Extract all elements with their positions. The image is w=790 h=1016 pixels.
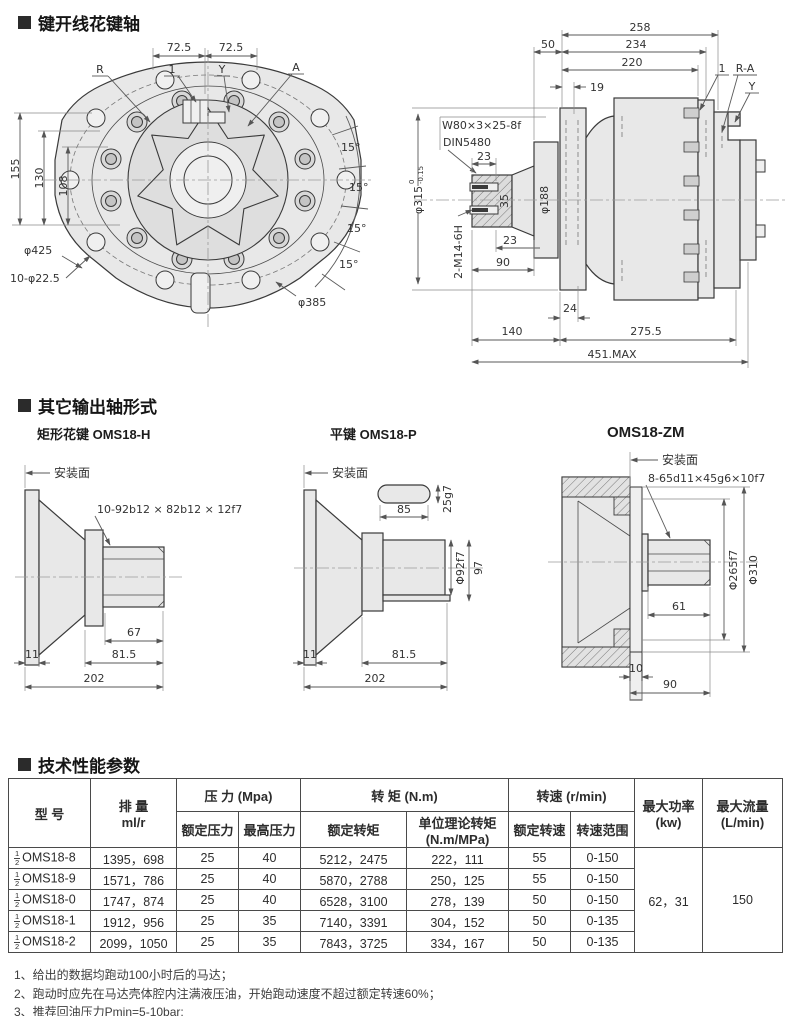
max-pressure-cell: 40	[239, 848, 301, 869]
dim-188: φ188	[538, 186, 551, 214]
dim-451-max: 451.MAX	[587, 348, 637, 361]
dim-315: φ315	[412, 186, 425, 214]
label-a: A	[292, 61, 300, 74]
max-pressure-cell: 40	[239, 869, 301, 890]
rated-speed-cell: 55	[509, 848, 571, 869]
half-fraction: 12	[14, 913, 20, 930]
dim-23a: 23	[477, 150, 491, 163]
rated-speed-cell: 50	[509, 890, 571, 911]
group-header-pressure: 压 力 (Mpa)	[177, 779, 301, 812]
rated-torque-cell: 6528，3100	[301, 890, 407, 911]
rated-speed-cell: 55	[509, 869, 571, 890]
dim-258: 258	[630, 21, 651, 34]
dim-11: 11	[25, 648, 39, 661]
dim-385: φ385	[298, 296, 326, 309]
spline-spec: 10-92b12 × 82b12 × 12f7	[97, 503, 242, 516]
shaft-zm-drawing: 安装面 8-65d11×45g6×10f7 Φ265f7 Φ310 61 10 …	[540, 430, 790, 710]
dim-23b: 23	[503, 234, 517, 247]
section-marker-icon	[18, 16, 31, 29]
displacement-cell: 2099，1050	[91, 932, 177, 953]
max-pressure-cell: 35	[239, 932, 301, 953]
angle-15-3: 15°	[347, 222, 367, 235]
max-pressure-cell: 35	[239, 911, 301, 932]
label-y: Y	[748, 80, 756, 93]
spline-callout: 8-65d11×45g6×10f7	[646, 472, 765, 538]
col-header-displacement-line1: 排 量	[91, 796, 176, 815]
spline-callout: 10-92b12 × 82b12 × 12f7	[95, 503, 242, 545]
shaft-p-drawing: 安装面 85 25g7 Φ92f7 97 11 81.5 202	[290, 455, 500, 700]
max-flow-cell: 150	[703, 848, 783, 953]
model-cell: 12OMS18-8	[9, 848, 91, 869]
dim-holes-22-5: 10-φ22.5	[10, 272, 60, 285]
footnote-1: 1、给出的数据均跑动100小时后的马达；	[14, 966, 441, 985]
spline-spec: 8-65d11×45g6×10f7	[648, 472, 765, 485]
speed-range-cell: 0-150	[571, 869, 635, 890]
group-header-speed: 转速 (r/min)	[509, 779, 635, 812]
unit-torque-cell: 334，167	[407, 932, 509, 953]
section-title-text: 技术性能参数	[38, 752, 140, 777]
dim-202: 202	[365, 672, 386, 685]
rated-pressure-cell: 25	[177, 890, 239, 911]
model-name: OMS18-9	[22, 871, 76, 885]
dim-234: 234	[626, 38, 647, 51]
label-r: R	[96, 63, 104, 76]
model-cell: 12OMS18-2	[9, 932, 91, 953]
half-fraction: 12	[14, 892, 20, 909]
main-barrel	[614, 98, 698, 300]
mount-face-callout: 安装面	[304, 465, 368, 488]
displacement-cell: 1571，786	[91, 869, 177, 890]
col-header-speed-range: 转速范围	[571, 812, 635, 848]
section-title-text: 其它输出轴形式	[38, 393, 157, 418]
unit-torque-cell: 304，152	[407, 911, 509, 932]
dim-81-5: 81.5	[392, 648, 417, 661]
displacement-cell: 1395，698	[91, 848, 177, 869]
dim-35: 35	[498, 194, 511, 208]
dim-61: 61	[672, 600, 686, 613]
rated-torque-cell: 5870，2788	[301, 869, 407, 890]
footnote-2: 2、跑动时应先在马达壳体腔内注满液压油，开始跑动速度不超过额定转速60%；	[14, 985, 441, 1004]
model-cell: 12OMS18-9	[9, 869, 91, 890]
label-1: 1	[169, 63, 176, 76]
mount-face-label: 安装面	[332, 465, 368, 480]
unit-torque-cell: 278，139	[407, 890, 509, 911]
dim-155: 155	[9, 159, 22, 180]
model-name: OMS18-2	[22, 934, 76, 948]
half-fraction: 12	[14, 934, 20, 951]
label-1: 1	[719, 62, 726, 75]
col-header-model: 型 号	[9, 779, 91, 848]
motor-front-view-drawing: 72.5 72.5 R 1 Y A 155 130 108	[0, 30, 400, 365]
col-header-max-flow: 最大流量 (L/min)	[703, 779, 783, 848]
dim-220: 220	[622, 56, 643, 69]
model-name: OMS18-0	[22, 892, 76, 906]
half-fraction: 12	[14, 871, 20, 888]
dim-24: 24	[563, 302, 577, 315]
thread-spec: 2-M14-6H	[452, 225, 465, 279]
section-title-output-shafts: 其它输出轴形式	[18, 393, 157, 418]
dim-50: 50	[541, 38, 555, 51]
rated-pressure-cell: 25	[177, 911, 239, 932]
mount-face-label: 安装面	[662, 452, 698, 467]
dim-315-group: φ315 0 -0.15	[408, 166, 425, 214]
angle-15-2: 15°	[349, 181, 369, 194]
dim-90: 90	[663, 678, 677, 691]
dim-81-5: 81.5	[112, 648, 137, 661]
mount-face-label: 安装面	[54, 465, 90, 480]
key	[378, 485, 430, 503]
speed-range-cell: 0-150	[571, 848, 635, 869]
col-header-max-power: 最大功率 (kw)	[635, 779, 703, 848]
mounting-plate	[630, 487, 642, 652]
angle-15-1: 15°	[341, 141, 361, 154]
col-header-rated-pressure: 额定压力	[177, 812, 239, 848]
col-header-max-power-line1: 最大功率	[635, 796, 702, 815]
flange-315	[560, 108, 586, 290]
rated-pressure-cell: 25	[177, 848, 239, 869]
displacement-cell: 1747，874	[91, 890, 177, 911]
rated-pressure-cell: 25	[177, 869, 239, 890]
motor-side-section-drawing: 258 50 234 220 19 1 R-A Y W80×3×25-8f DI…	[400, 20, 790, 370]
section-title-specs: 技术性能参数	[18, 752, 140, 777]
spline-spec: W80×3×25-8f	[442, 119, 522, 132]
din-standard: DIN5480	[443, 136, 491, 149]
col-header-max-flow-line1: 最大流量	[703, 796, 782, 815]
unit-torque-cell: 250，125	[407, 869, 509, 890]
rated-torque-cell: 7843，3725	[301, 932, 407, 953]
dim-130: 130	[33, 168, 46, 189]
output-spline	[648, 540, 710, 585]
col-header-rated-torque: 额定转矩	[301, 812, 407, 848]
dim-92f7: Φ92f7	[454, 551, 467, 585]
rated-pressure-cell: 25	[177, 932, 239, 953]
rated-speed-cell: 50	[509, 911, 571, 932]
label-ra: R-A	[736, 62, 755, 75]
dim-11: 11	[303, 648, 317, 661]
dim-19: 19	[590, 81, 604, 94]
footnotes: 1、给出的数据均跑动100小时后的马达； 2、跑动时应先在马达壳体腔内注满液压油…	[14, 966, 441, 1016]
shaft-profile	[25, 490, 164, 665]
label-y: Y	[218, 63, 226, 76]
mount-face-callout: 安装面	[25, 465, 90, 488]
col-header-max-power-line2: (kw)	[635, 815, 702, 830]
col-header-unit-torque: 单位理论转矩 (N.m/MPa)	[407, 812, 509, 848]
dim-315-tol-hi: 0	[408, 180, 416, 184]
model-cell: 12OMS18-1	[9, 911, 91, 932]
col-header-displacement: 排 量 ml/r	[91, 779, 177, 848]
dim-97: 97	[472, 561, 485, 575]
subtitle-oms18-h: 矩形花键 OMS18-H	[37, 424, 150, 443]
dim-72-left: 72.5	[167, 41, 192, 54]
table-row: 12OMS18-8 1395，698 25 40 5212，2475 222，1…	[9, 848, 783, 869]
rated-torque-cell: 5212，2475	[301, 848, 407, 869]
dim-25g7: 25g7	[441, 485, 454, 513]
bottom-key-stub	[191, 273, 210, 313]
half-fraction: 12	[14, 850, 20, 867]
col-header-displacement-line2: ml/r	[91, 815, 176, 830]
section-marker-icon	[18, 758, 31, 771]
dim-265f7: Φ265f7	[727, 550, 740, 591]
model-cell: 12OMS18-0	[9, 890, 91, 911]
dim-72-right: 72.5	[219, 41, 244, 54]
speed-range-cell: 0-150	[571, 890, 635, 911]
group-header-torque: 转 矩 (N.m)	[301, 779, 509, 812]
speed-range-cell: 0-135	[571, 911, 635, 932]
dim-275: 275.5	[630, 325, 662, 338]
model-name: OMS18-1	[22, 913, 76, 927]
datasheet-page: 键开线花键轴	[0, 0, 790, 1016]
spec-table: 型 号 排 量 ml/r 压 力 (Mpa) 转 矩 (N.m) 转速 (r/m…	[8, 778, 783, 953]
dim-67: 67	[127, 626, 141, 639]
dim-140: 140	[502, 325, 523, 338]
rated-speed-cell: 50	[509, 932, 571, 953]
col-header-rated-speed: 额定转速	[509, 812, 571, 848]
unit-torque-cell: 222，111	[407, 848, 509, 869]
col-header-max-pressure: 最高压力	[239, 812, 301, 848]
col-header-max-flow-line2: (L/min)	[703, 815, 782, 830]
shaft-h-drawing: 安装面 10-92b12 × 82b12 × 12f7 67 11 81.5 2…	[10, 455, 280, 700]
dim-10: 10	[629, 662, 643, 675]
dim-202: 202	[84, 672, 105, 685]
footnote-3: 3、推荐回油压力Pmin=5-10bar;	[14, 1003, 441, 1016]
dim-85: 85	[397, 503, 411, 516]
max-power-cell: 62，31	[635, 848, 703, 953]
dim-108: 108	[57, 176, 70, 197]
rated-torque-cell: 7140，3391	[301, 911, 407, 932]
max-pressure-cell: 40	[239, 890, 301, 911]
dim-90: 90	[496, 256, 510, 269]
section-marker-icon	[18, 399, 31, 412]
displacement-cell: 1912，956	[91, 911, 177, 932]
dim-310: Φ310	[747, 555, 760, 585]
col-header-unit-torque-line1: 单位理论转矩	[407, 813, 508, 832]
model-name: OMS18-8	[22, 850, 76, 864]
dim-425: φ425	[24, 244, 52, 257]
speed-range-cell: 0-135	[571, 932, 635, 953]
angle-15-4: 15°	[339, 258, 359, 271]
subtitle-oms18-p: 平键 OMS18-P	[330, 424, 417, 443]
col-header-unit-torque-line2: (N.m/MPa)	[407, 832, 508, 847]
